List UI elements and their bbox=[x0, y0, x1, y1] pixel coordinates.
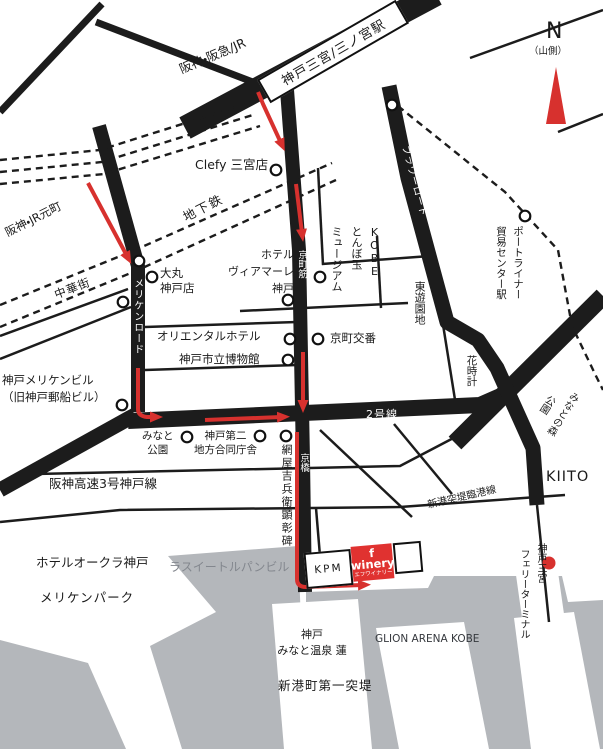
fwinery-building: f winery エフワイナリー bbox=[351, 543, 395, 581]
godochosha-label: 神戸第二 地方合同庁舎 bbox=[194, 430, 257, 457]
hotel-viamare-label: ホテル ヴィアマーレ 神戸 bbox=[228, 246, 294, 297]
kyobashi-label: 京橋 bbox=[297, 453, 309, 472]
poi-marker bbox=[315, 272, 326, 283]
compass-note: （山側） bbox=[529, 46, 567, 58]
poi-marker bbox=[281, 431, 292, 442]
poi-marker bbox=[117, 400, 128, 411]
portliner-col2: 貿易センター駅 bbox=[494, 226, 509, 300]
poi-marker bbox=[387, 100, 398, 111]
meriken-road-label: メリケンロード bbox=[130, 278, 143, 355]
tonbodama-col2: とんぼ玉 bbox=[348, 226, 364, 292]
tonbodama-col1: KOBE bbox=[368, 226, 381, 292]
north-arrow-icon bbox=[546, 67, 566, 124]
fwinery-kana: エフワイナリー bbox=[354, 570, 393, 579]
koban-label: 京町交番 bbox=[330, 331, 376, 346]
tonbodama-label: ミュージアム とんぼ玉 KOBE bbox=[328, 226, 381, 292]
onsen-label: 神戸 みなと温泉 蓮 bbox=[268, 627, 356, 659]
route2-label: 2号線 bbox=[366, 408, 398, 422]
ferry-col1: 神戸三宮 bbox=[533, 543, 548, 639]
meriken-park-label: メリケンパーク bbox=[40, 590, 134, 606]
kiito-label: KIITO bbox=[546, 468, 589, 487]
poi-marker bbox=[134, 256, 145, 267]
amiya-monument-label: 網屋吉兵衛顕彰碑 bbox=[279, 444, 293, 548]
poi-marker bbox=[147, 272, 158, 283]
hanshin-expwy-label: 阪神高速3号神戸線 bbox=[49, 476, 157, 492]
poi-marker bbox=[313, 334, 324, 345]
poi-marker bbox=[118, 297, 129, 308]
neighbor-building bbox=[393, 541, 424, 574]
kpm-label: KPM bbox=[314, 562, 343, 576]
poi-marker bbox=[520, 211, 531, 222]
meriken-road bbox=[99, 126, 138, 412]
daimaru-label: 大丸 神戸店 bbox=[160, 266, 195, 295]
glion-arena-label: GLION ARENA KOBE bbox=[375, 633, 479, 646]
portliner-col1: ポートライナー bbox=[511, 226, 526, 300]
clefy-label: Clefy 三宮店 bbox=[195, 157, 268, 173]
kpm-building: KPM bbox=[304, 549, 354, 589]
ferry-col2: フェリーターミナル bbox=[516, 549, 531, 639]
meriken-bldg-label: 神戸メリケンビル （旧神戸郵船ビル） bbox=[2, 372, 106, 407]
minato-park-label: みなと 公園 bbox=[142, 430, 174, 457]
lasuite-label: ラスイートルパンビル bbox=[169, 560, 289, 575]
poi-marker bbox=[182, 432, 193, 443]
access-map: 神戸三宮/三ノ宮駅 KPM f winery エフワイナリー N （山側） 阪神… bbox=[0, 0, 603, 749]
hanadokei-label: 花時計 bbox=[464, 355, 477, 387]
ferry-terminal-label: フェリーターミナル 神戸三宮 bbox=[516, 543, 548, 639]
portliner-station-label: 貿易センター駅 ポートライナー bbox=[494, 226, 526, 300]
kyomachisuji-label: 京町筋 bbox=[295, 250, 307, 279]
oriental-hotel-label: オリエンタルホテル bbox=[157, 329, 261, 344]
tonbodama-col3: ミュージアム bbox=[328, 226, 344, 292]
shinko-pier-label: 新港町第一突堤 bbox=[278, 678, 373, 694]
poi-marker bbox=[285, 334, 296, 345]
higashi-yuenchi-label: 東遊園地 bbox=[412, 281, 426, 325]
poi-marker bbox=[271, 165, 282, 176]
hotel-okura-label: ホテルオークラ神戸 bbox=[36, 555, 149, 571]
compass-n: N bbox=[546, 18, 562, 46]
city-museum-label: 神戸市立博物館 bbox=[179, 352, 260, 367]
poi-marker bbox=[283, 355, 294, 366]
